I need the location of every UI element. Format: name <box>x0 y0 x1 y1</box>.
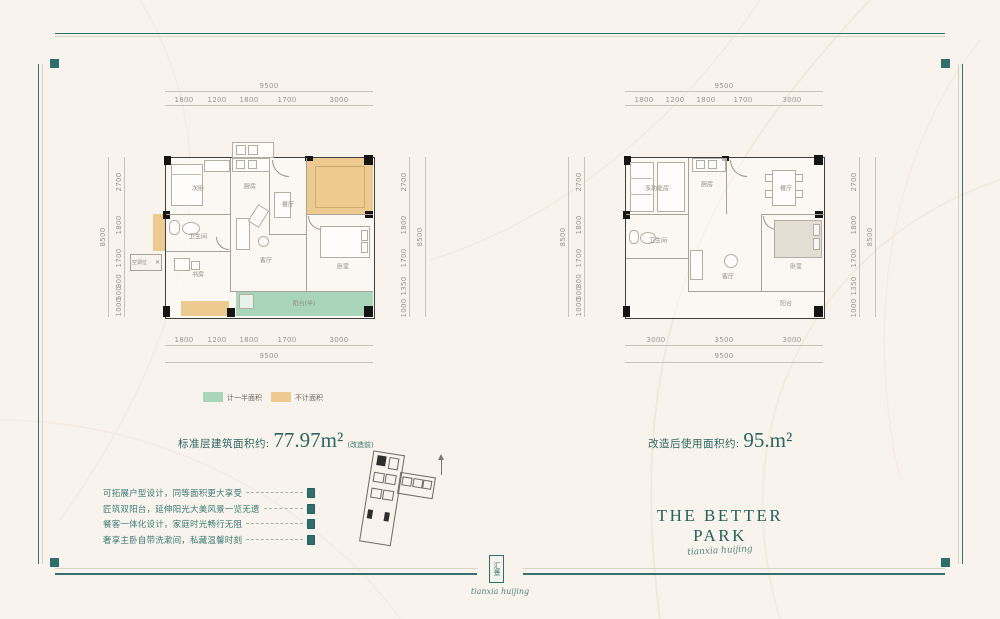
dim-line <box>124 157 125 317</box>
dim-line <box>625 105 823 106</box>
seal-stamp-icon <box>307 519 315 529</box>
feature-text: 奢享主卧自带洗漱间，私藏温馨时刻 <box>103 534 242 546</box>
door-arc <box>216 237 229 250</box>
dim-label: 3000 <box>329 96 348 104</box>
frame-corner-square <box>50 59 59 68</box>
ac-unit-box: 空调位 ✕ <box>130 254 162 271</box>
leader-line <box>246 538 303 540</box>
dim-label: 2700 <box>850 172 858 191</box>
key-plan-unit <box>401 476 412 486</box>
dim-label: 1800 <box>400 215 408 234</box>
dim-label: 1800 <box>850 215 858 234</box>
area-standard: 标准层建筑面积约: 77.97m² (改造前) <box>178 428 374 453</box>
wardrobe-furniture <box>204 160 230 172</box>
legend-half-swatch <box>203 392 223 402</box>
dim-label: 2700 <box>115 172 123 191</box>
dim-label: 3500 <box>714 336 733 344</box>
dim-label: 2700 <box>400 172 408 191</box>
pillow <box>813 238 820 250</box>
wall-pier <box>623 211 630 219</box>
lounge-chair <box>248 204 270 228</box>
dim-line <box>108 157 109 317</box>
feature-text: 餐客一体化设计，家庭时光畅行无阻 <box>103 518 242 530</box>
coffee-table <box>258 236 269 247</box>
dim-label: 8500 <box>866 227 874 246</box>
room-label-bed1: 卧室 <box>337 262 349 271</box>
partition <box>230 158 231 291</box>
dim-line <box>425 157 426 317</box>
dim-label: 1350 <box>400 276 408 295</box>
frame-right-line <box>962 64 963 564</box>
door-arc <box>730 160 747 177</box>
pillow <box>361 230 368 241</box>
terrace-inner <box>315 166 365 208</box>
dim-label: 1000 <box>575 297 583 316</box>
key-plan-unit <box>382 489 394 501</box>
feature-item: 匠筑双阳台，延伸阳光大美风景一览无遗 <box>103 503 315 515</box>
chair-furniture <box>795 190 803 198</box>
wall-pier <box>163 211 170 219</box>
dim-label: 9500 <box>714 82 733 90</box>
dim-line <box>165 91 373 92</box>
key-plan-unit <box>384 474 396 486</box>
dim-label: 3000 <box>782 336 801 344</box>
dim-line <box>165 345 373 346</box>
legend-half-label: 计一半面积 <box>227 393 262 403</box>
brand-seal: 汇景 <box>489 555 504 583</box>
toilet <box>629 230 639 244</box>
feature-text: 可拓展户型设计，同等面积更大享受 <box>103 487 242 499</box>
dim-label: 1800 <box>174 336 193 344</box>
dim-line <box>625 91 823 92</box>
washer <box>239 294 254 309</box>
partition <box>688 158 689 291</box>
dim-label: 1700 <box>733 96 752 104</box>
brand-logo: THE BETTER PARK tianxia huijing <box>630 506 810 556</box>
area-standard-note: (改造前) <box>347 440 373 450</box>
stove-icon <box>696 160 705 169</box>
area-standard-value: 77.97m² <box>273 428 343 453</box>
wall-pier <box>814 155 823 165</box>
legend-excluded-label: 不计面积 <box>295 393 323 403</box>
seal-stamp-icon <box>307 488 315 498</box>
north-arrow-head <box>438 454 444 460</box>
partition <box>626 258 688 259</box>
dim-line <box>625 345 823 346</box>
dim-label: 1200 <box>665 96 684 104</box>
dim-label: 1000 <box>400 298 408 317</box>
dim-label: 8500 <box>416 227 424 246</box>
dim-label: 1700 <box>277 96 296 104</box>
door-arc <box>272 160 289 177</box>
room-label-multi: 多功能房 <box>645 184 669 193</box>
dim-line <box>165 105 373 106</box>
seal-stamp-icon <box>307 504 315 514</box>
appliance-icon <box>236 145 246 155</box>
dim-label: 1700 <box>575 248 583 267</box>
feature-item: 可拓展户型设计，同等面积更大享受 <box>103 487 315 499</box>
dim-line <box>625 362 823 363</box>
dim-line <box>875 157 876 317</box>
wall-pier <box>364 155 373 165</box>
room-label-kitchen: 厨房 <box>701 180 713 189</box>
bed-pillow-line <box>171 174 201 175</box>
area-renovated-label: 改造后使用面积约: <box>648 436 739 451</box>
area-renovated-value: 95.m² <box>743 428 792 453</box>
pillow <box>361 242 368 253</box>
floorplan-right: 多功能房 卫生间 厨房 餐厅 客厅 卧室 阳台 <box>625 157 825 319</box>
dim-label: 1200 <box>207 336 226 344</box>
brand-name: THE BETTER PARK <box>630 506 810 546</box>
ac-label: 空调位 <box>132 259 147 266</box>
frame-left-line-inner <box>42 64 43 564</box>
partition <box>306 214 373 215</box>
sink-icon <box>708 160 717 169</box>
dim-label: 1000 <box>850 298 858 317</box>
dim-line <box>165 362 373 363</box>
room-label-kitchen: 厨房 <box>244 182 256 191</box>
area-renovated: 改造后使用面积约: 95.m² <box>648 428 792 453</box>
feature-item: 奢享主卧自带洗漱间，私藏温馨时刻 <box>103 534 315 546</box>
bottom-script: tianxia huijing <box>440 587 560 596</box>
dim-line <box>584 157 585 317</box>
room-label-bed2: 次卧 <box>192 184 204 193</box>
leader-line <box>246 491 303 493</box>
dim-label: 1800 <box>115 215 123 234</box>
north-arrow-icon <box>441 460 442 475</box>
room-label-bath: 卫生间 <box>649 236 667 245</box>
partition <box>306 158 307 291</box>
leader-line <box>246 522 303 524</box>
feature-text: 匠筑双阳台，延伸阳光大美风景一览无遗 <box>103 503 260 515</box>
key-plan-unit <box>388 457 400 470</box>
dim-label: 9500 <box>259 352 278 360</box>
partition <box>166 251 230 252</box>
desk-furniture <box>174 258 190 271</box>
frame-corner-square <box>941 59 950 68</box>
dim-label: 1700 <box>115 248 123 267</box>
frame-right-line-inner <box>958 64 959 564</box>
frame-top-line <box>55 33 945 34</box>
frame-top-line-inner <box>55 36 945 37</box>
floorplan-left: 空调位 ✕ 次卧 厨房 餐厅 卫生间 书房 客厅 卧室 阳台(半) <box>165 157 375 319</box>
coffee-table <box>724 254 738 268</box>
partition <box>761 214 824 215</box>
partition <box>688 291 824 292</box>
dim-label: 1800 <box>634 96 653 104</box>
dim-line <box>859 157 860 317</box>
frame-corner-square <box>941 558 950 567</box>
ac-x-icon: ✕ <box>155 259 160 266</box>
dim-label: 1700 <box>277 336 296 344</box>
pillow <box>813 224 820 236</box>
dim-label: 9500 <box>714 352 733 360</box>
side-bay-area <box>153 214 165 251</box>
dim-label: 9500 <box>259 82 278 90</box>
room-label-study: 书房 <box>192 270 204 279</box>
dim-label: 1200 <box>207 96 226 104</box>
frame-bottom-line-right <box>523 568 945 569</box>
wall-pier <box>164 156 171 165</box>
frame-bottom-line-left <box>55 568 477 569</box>
key-plan-unit-highlight <box>376 455 386 466</box>
area-standard-label: 标准层建筑面积约: <box>178 436 269 451</box>
dim-label: 1800 <box>696 96 715 104</box>
dim-label: 1700 <box>400 248 408 267</box>
room-label-balcony: 阳台(半) <box>293 299 316 308</box>
dim-label: 3000 <box>329 336 348 344</box>
wall-pier <box>227 308 235 317</box>
chair-furniture <box>765 190 773 198</box>
dim-line <box>409 157 410 317</box>
sofa-furniture <box>690 250 703 280</box>
dim-label: 2700 <box>575 172 583 191</box>
dim-line <box>568 157 569 317</box>
dim-label: 1800 <box>239 96 258 104</box>
room-label-balcony: 阳台 <box>780 299 792 308</box>
room-label-bath: 卫生间 <box>189 232 207 241</box>
room-label-dining: 餐厅 <box>282 200 294 209</box>
seal-stamp-icon <box>307 535 315 545</box>
sofa-furniture <box>236 218 250 250</box>
frame-corner-square <box>50 558 59 567</box>
chair-furniture <box>795 174 803 182</box>
key-plan-unit <box>370 488 382 500</box>
dim-label: 8500 <box>99 227 107 246</box>
wall-pier <box>623 306 630 317</box>
feature-item: 餐客一体化设计，家庭时光畅行无阻 <box>103 518 315 530</box>
partition <box>761 214 762 291</box>
partition <box>626 214 688 215</box>
dim-label: 1800 <box>239 336 258 344</box>
bottom-bay-area <box>181 301 229 316</box>
chair-furniture <box>765 174 773 182</box>
frame-bottom-accent-right <box>523 573 945 575</box>
legend-excluded-swatch <box>271 392 291 402</box>
leader-line <box>264 507 303 509</box>
sink-icon <box>248 160 257 169</box>
dim-label: 1800 <box>174 96 193 104</box>
wall-pier <box>814 306 823 317</box>
room-label-dining: 餐厅 <box>780 184 792 193</box>
wardrobe-line <box>630 178 652 179</box>
dim-label: 1350 <box>850 276 858 295</box>
brochure-page: 9500 1800 1200 1800 1700 3000 1800 1200 … <box>0 0 1000 619</box>
toilet <box>169 220 180 235</box>
dim-label: 3000 <box>782 96 801 104</box>
wardrobe-line <box>630 194 652 195</box>
wall-pier <box>364 306 373 317</box>
room-label-living: 客厅 <box>722 272 734 281</box>
appliance-icon <box>248 145 258 155</box>
frame-left-line <box>38 64 39 564</box>
wall-pier <box>163 306 170 317</box>
room-label-bed: 卧室 <box>790 262 802 271</box>
dim-label: 1800 <box>575 215 583 234</box>
key-plan-unit <box>422 480 432 490</box>
dim-label: 8500 <box>559 227 567 246</box>
key-plan-unit <box>373 472 385 484</box>
dim-label: 1700 <box>850 248 858 267</box>
partition <box>166 214 230 215</box>
dim-label: 3000 <box>646 336 665 344</box>
stove-icon <box>236 160 245 169</box>
frame-bottom-accent-left <box>55 573 477 575</box>
brand-seal-text: 汇景 <box>493 562 500 576</box>
partition <box>230 291 373 292</box>
dim-label: 1000 <box>115 297 123 316</box>
room-label-living: 客厅 <box>260 256 272 265</box>
partition <box>726 158 727 214</box>
partition <box>269 234 306 235</box>
